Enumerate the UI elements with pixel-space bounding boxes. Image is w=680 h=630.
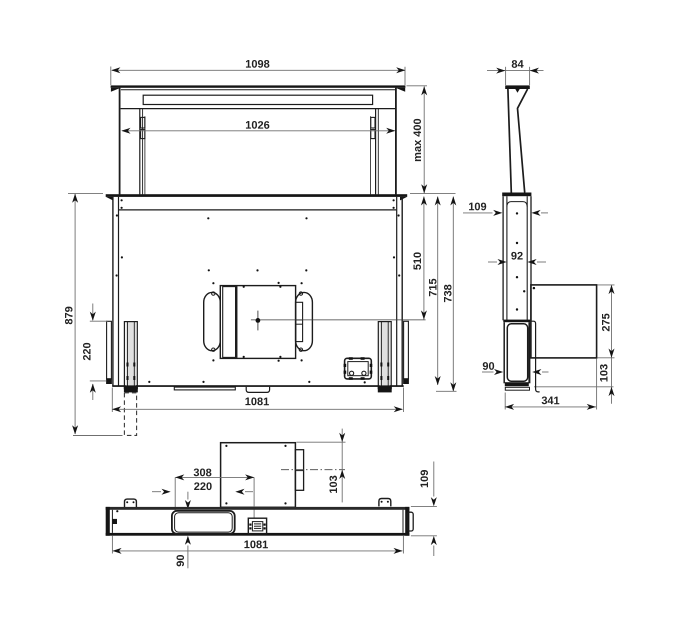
svg-text:738: 738 xyxy=(443,284,455,302)
svg-text:103: 103 xyxy=(328,475,340,493)
svg-text:90: 90 xyxy=(175,554,187,566)
svg-text:510: 510 xyxy=(412,252,424,270)
svg-text:1098: 1098 xyxy=(245,59,269,71)
svg-text:103: 103 xyxy=(599,364,611,382)
svg-text:715: 715 xyxy=(427,278,439,296)
svg-text:90: 90 xyxy=(482,361,494,373)
svg-text:109: 109 xyxy=(419,470,431,488)
svg-text:220: 220 xyxy=(194,481,212,493)
svg-text:92: 92 xyxy=(511,250,523,262)
svg-text:1026: 1026 xyxy=(245,120,269,132)
svg-text:1081: 1081 xyxy=(245,396,269,408)
svg-text:879: 879 xyxy=(64,306,76,324)
svg-text:220: 220 xyxy=(81,342,93,360)
svg-text:275: 275 xyxy=(601,313,613,331)
svg-text:341: 341 xyxy=(541,395,559,407)
svg-text:84: 84 xyxy=(511,59,524,71)
svg-text:109: 109 xyxy=(468,201,486,213)
svg-text:308: 308 xyxy=(193,467,211,479)
svg-text:1081: 1081 xyxy=(244,539,268,551)
svg-text:max 400: max 400 xyxy=(412,118,424,161)
